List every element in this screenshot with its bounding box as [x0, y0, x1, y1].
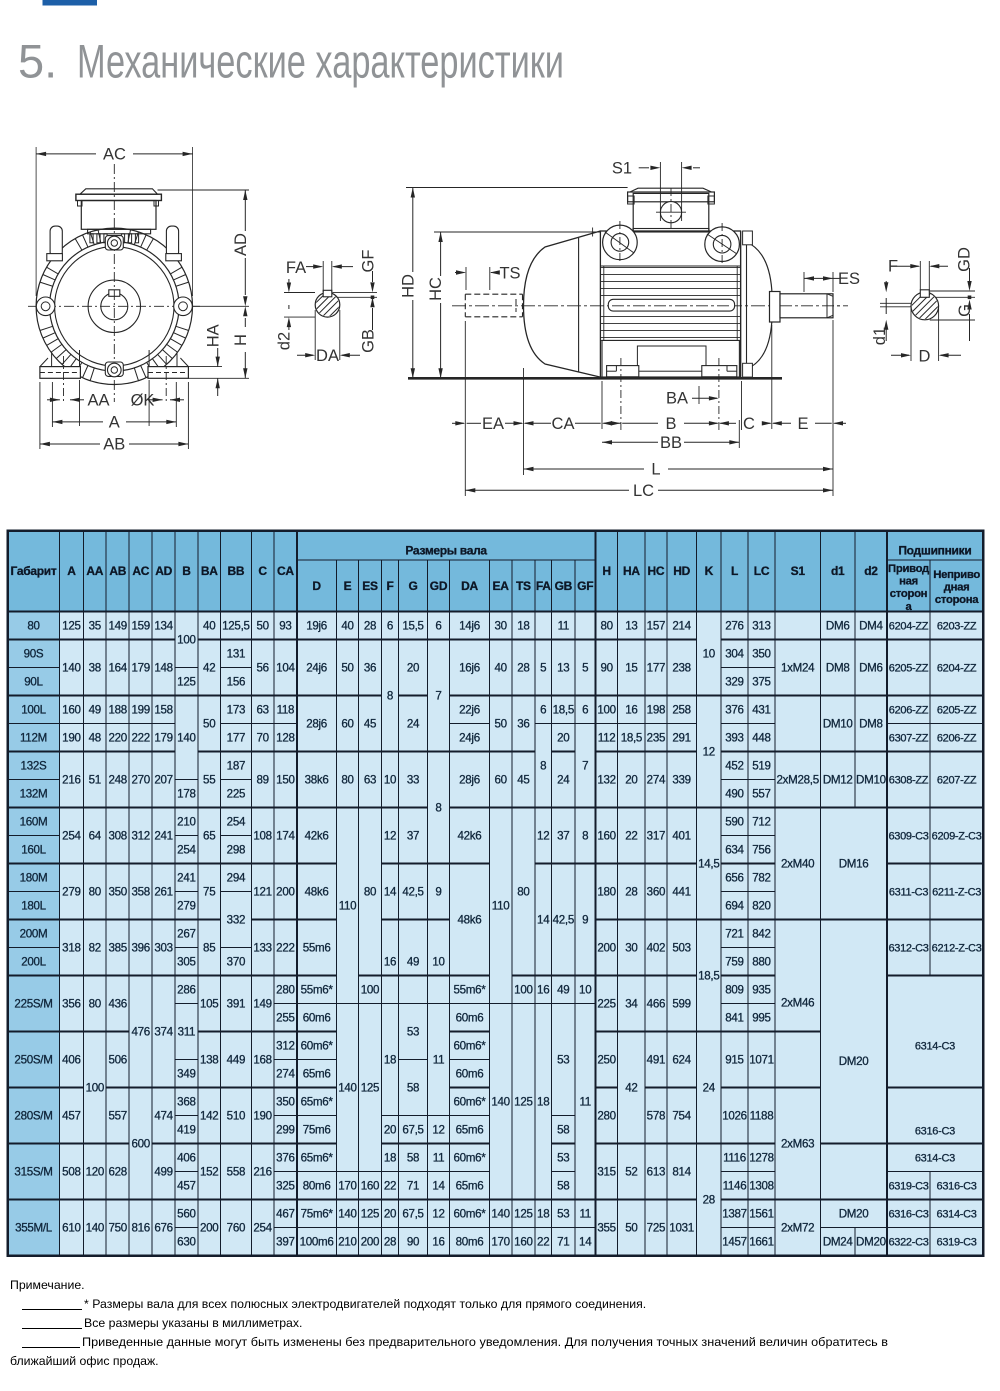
svg-text:241: 241	[154, 830, 172, 843]
svg-text:349: 349	[177, 1068, 195, 1081]
svg-text:160M: 160M	[20, 816, 48, 829]
svg-text:80: 80	[27, 620, 39, 633]
svg-text:104: 104	[276, 662, 295, 675]
svg-text:50: 50	[256, 620, 268, 633]
svg-text:* Размеры вала для всех полюсн: * Размеры вала для всех полюсных электро…	[84, 1297, 646, 1311]
svg-text:5: 5	[582, 662, 588, 675]
svg-text:2xM46: 2xM46	[781, 997, 814, 1010]
svg-text:DM6: DM6	[859, 662, 883, 675]
svg-text:HD: HD	[399, 274, 417, 298]
svg-text:200: 200	[276, 886, 294, 899]
svg-text:308: 308	[108, 830, 126, 843]
svg-text:Неприво: Неприво	[933, 569, 980, 581]
svg-text:60m6*: 60m6*	[453, 1152, 486, 1165]
svg-text:40: 40	[494, 662, 506, 675]
svg-text:A: A	[109, 413, 120, 431]
svg-text:EA: EA	[493, 579, 510, 593]
svg-text:303: 303	[154, 942, 172, 955]
svg-text:125: 125	[62, 620, 80, 633]
svg-text:DA: DA	[461, 579, 478, 593]
svg-text:6322-C3: 6322-C3	[888, 1237, 928, 1249]
svg-text:241: 241	[177, 872, 195, 885]
svg-text:67,5: 67,5	[402, 1124, 423, 1137]
svg-text:6314-C3: 6314-C3	[915, 1153, 955, 1165]
svg-text:180M: 180M	[20, 872, 48, 885]
svg-text:250S/M: 250S/M	[14, 1054, 52, 1067]
svg-text:90: 90	[600, 662, 612, 675]
svg-text:279: 279	[177, 900, 195, 913]
svg-text:401: 401	[672, 830, 690, 843]
svg-text:814: 814	[672, 1166, 691, 1179]
svg-text:225: 225	[227, 788, 245, 801]
svg-text:Габарит: Габарит	[11, 564, 57, 578]
svg-text:36: 36	[517, 718, 529, 731]
svg-text:12: 12	[432, 1208, 444, 1221]
svg-text:38: 38	[89, 662, 101, 675]
svg-text:6307-ZZ: 6307-ZZ	[889, 733, 929, 745]
svg-text:276: 276	[725, 620, 743, 633]
svg-text:A: A	[67, 564, 76, 578]
svg-text:457: 457	[177, 1180, 195, 1193]
svg-text:1457: 1457	[722, 1236, 747, 1249]
svg-text:190: 190	[253, 1110, 271, 1123]
svg-text:441: 441	[672, 886, 690, 899]
svg-text:200L: 200L	[21, 956, 46, 969]
svg-text:HC: HC	[427, 277, 445, 301]
svg-text:18: 18	[537, 1096, 549, 1109]
svg-text:312: 312	[131, 830, 149, 843]
svg-text:10: 10	[579, 984, 591, 997]
svg-text:FA: FA	[286, 259, 306, 277]
svg-text:6316-C3: 6316-C3	[937, 1181, 977, 1193]
svg-text:K: K	[705, 564, 714, 578]
svg-text:216: 216	[253, 1166, 271, 1179]
svg-text:1116: 1116	[723, 1152, 746, 1165]
svg-text:51: 51	[89, 774, 101, 787]
svg-text:10: 10	[384, 774, 396, 787]
svg-text:210: 210	[177, 816, 195, 829]
svg-text:14: 14	[537, 914, 550, 927]
svg-text:214: 214	[672, 620, 691, 633]
svg-text:71: 71	[407, 1180, 419, 1193]
svg-text:53: 53	[557, 1054, 569, 1067]
svg-text:63: 63	[256, 704, 268, 717]
svg-text:374: 374	[154, 1026, 173, 1039]
svg-text:329: 329	[725, 676, 743, 689]
svg-text:6211-Z-C3: 6211-Z-C3	[932, 887, 981, 899]
svg-text:16: 16	[384, 956, 396, 969]
svg-text:6206-ZZ: 6206-ZZ	[937, 733, 977, 745]
svg-text:ная: ная	[899, 576, 918, 588]
svg-text:935: 935	[752, 984, 770, 997]
svg-text:132M: 132M	[20, 788, 48, 801]
svg-text:222: 222	[131, 732, 149, 745]
svg-text:53: 53	[407, 1026, 419, 1039]
svg-text:сторона: сторона	[935, 594, 979, 606]
svg-text:85: 85	[203, 942, 215, 955]
svg-text:L: L	[731, 564, 738, 578]
svg-text:ближайший офис продаж.: ближайший офис продаж.	[10, 1354, 159, 1368]
svg-text:35: 35	[89, 620, 101, 633]
svg-text:42k6: 42k6	[305, 830, 329, 843]
svg-text:D: D	[312, 579, 321, 593]
svg-text:42,5: 42,5	[402, 886, 423, 899]
svg-text:71: 71	[557, 1236, 569, 1249]
svg-text:100: 100	[86, 1082, 104, 1095]
svg-text:6314-C3: 6314-C3	[937, 1209, 977, 1221]
svg-text:760: 760	[227, 1222, 245, 1235]
svg-text:DM10: DM10	[856, 774, 886, 787]
svg-text:65m6: 65m6	[303, 1068, 331, 1081]
svg-text:14: 14	[579, 1236, 592, 1249]
svg-text:45: 45	[517, 774, 529, 787]
svg-text:128: 128	[276, 732, 294, 745]
svg-text:225S/M: 225S/M	[14, 998, 52, 1011]
svg-text:28: 28	[703, 1194, 715, 1207]
svg-text:B: B	[665, 415, 676, 433]
svg-text:80: 80	[89, 998, 101, 1011]
svg-text:33: 33	[407, 774, 419, 787]
svg-text:402: 402	[647, 942, 665, 955]
svg-text:6: 6	[387, 620, 393, 633]
svg-text:80: 80	[341, 774, 353, 787]
svg-text:376: 376	[725, 704, 743, 717]
svg-text:125: 125	[361, 1208, 379, 1221]
svg-text:60m6: 60m6	[303, 1012, 331, 1025]
svg-text:140: 140	[338, 1082, 356, 1095]
svg-text:286: 286	[177, 984, 195, 997]
svg-text:30: 30	[494, 620, 506, 633]
svg-text:Все размеры указаны в миллимет: Все размеры указаны в миллиметрах.	[84, 1316, 302, 1330]
svg-text:19j6: 19j6	[306, 620, 327, 633]
svg-text:6: 6	[540, 704, 546, 717]
svg-text:396: 396	[131, 942, 149, 955]
svg-text:13: 13	[625, 620, 637, 633]
svg-text:1188: 1188	[750, 1110, 774, 1123]
svg-text:20: 20	[407, 662, 419, 675]
svg-text:142: 142	[200, 1110, 218, 1123]
svg-text:125: 125	[361, 1082, 379, 1095]
svg-text:Механические характеристики: Механические характеристики	[77, 35, 564, 88]
svg-text:506: 506	[108, 1054, 126, 1067]
svg-text:BB: BB	[228, 564, 245, 578]
svg-text:613: 613	[647, 1166, 665, 1179]
svg-text:199: 199	[131, 704, 149, 717]
svg-text:610: 610	[62, 1222, 80, 1235]
svg-text:11: 11	[558, 620, 569, 633]
svg-text:55: 55	[203, 774, 215, 787]
svg-text:6314-C3: 6314-C3	[915, 1041, 955, 1053]
svg-text:90S: 90S	[24, 648, 44, 661]
svg-text:820: 820	[752, 900, 770, 913]
svg-text:560: 560	[177, 1208, 195, 1221]
svg-text:65m6: 65m6	[456, 1124, 484, 1137]
svg-text:53: 53	[557, 1208, 569, 1221]
svg-text:158: 158	[154, 704, 172, 717]
svg-text:6: 6	[435, 620, 441, 633]
svg-text:L: L	[651, 461, 660, 479]
svg-text:358: 358	[131, 886, 149, 899]
svg-text:656: 656	[725, 872, 743, 885]
svg-text:Подшипники: Подшипники	[898, 544, 971, 558]
svg-text:12: 12	[703, 746, 715, 759]
svg-text:391: 391	[227, 998, 245, 1011]
svg-text:915: 915	[725, 1054, 743, 1067]
svg-text:448: 448	[752, 732, 770, 745]
svg-text:6204-ZZ: 6204-ZZ	[889, 621, 929, 633]
svg-text:28j6: 28j6	[459, 774, 480, 787]
svg-text:S1: S1	[791, 564, 806, 578]
svg-text:37: 37	[557, 830, 569, 843]
svg-text:149: 149	[253, 998, 271, 1011]
svg-text:20: 20	[384, 1124, 396, 1137]
svg-text:DM8: DM8	[859, 718, 883, 731]
svg-text:431: 431	[752, 704, 770, 717]
svg-text:18: 18	[517, 620, 529, 633]
svg-text:125: 125	[514, 1096, 532, 1109]
svg-text:28: 28	[625, 886, 637, 899]
svg-text:220: 220	[108, 732, 126, 745]
svg-text:Приведенные данные могут быть: Приведенные данные могут быть изменены б…	[82, 1335, 888, 1349]
svg-text:207: 207	[154, 774, 172, 787]
svg-text:AA: AA	[87, 391, 109, 409]
svg-text:406: 406	[177, 1152, 195, 1165]
svg-text:53: 53	[557, 1152, 569, 1165]
svg-text:13: 13	[557, 662, 569, 675]
svg-text:298: 298	[227, 844, 245, 857]
svg-text:280S/M: 280S/M	[14, 1110, 52, 1123]
svg-text:LC: LC	[754, 564, 770, 578]
svg-text:131: 131	[227, 648, 245, 661]
svg-text:9: 9	[435, 886, 441, 899]
svg-text:160: 160	[597, 830, 615, 843]
svg-text:694: 694	[725, 900, 744, 913]
svg-text:118: 118	[277, 704, 295, 717]
svg-text:178: 178	[177, 788, 195, 801]
svg-text:80: 80	[89, 886, 101, 899]
svg-text:B: B	[182, 564, 191, 578]
svg-text:179: 179	[154, 732, 172, 745]
svg-text:170: 170	[491, 1236, 509, 1249]
svg-text:254: 254	[177, 844, 196, 857]
svg-text:ES: ES	[362, 579, 378, 593]
svg-text:52: 52	[625, 1166, 637, 1179]
svg-text:HC: HC	[648, 564, 665, 578]
svg-text:H: H	[602, 564, 610, 578]
svg-text:261: 261	[154, 886, 172, 899]
svg-text:140: 140	[86, 1222, 104, 1235]
svg-text:DM20: DM20	[839, 1208, 869, 1221]
svg-text:150: 150	[276, 774, 294, 787]
svg-text:173: 173	[227, 704, 245, 717]
svg-text:510: 510	[227, 1110, 245, 1123]
svg-text:D: D	[919, 348, 931, 366]
svg-text:6316-C3: 6316-C3	[888, 1209, 928, 1221]
svg-text:16: 16	[432, 1236, 444, 1249]
svg-text:248: 248	[108, 774, 126, 787]
svg-text:782: 782	[752, 872, 770, 885]
svg-text:60m6*: 60m6*	[453, 1096, 486, 1109]
svg-text:16j6: 16j6	[459, 662, 480, 675]
svg-text:14: 14	[432, 1180, 445, 1193]
svg-text:350: 350	[752, 648, 770, 661]
svg-text:6205-ZZ: 6205-ZZ	[889, 663, 929, 675]
svg-text:318: 318	[62, 942, 80, 955]
svg-text:AD: AD	[232, 233, 250, 256]
svg-text:20: 20	[625, 774, 637, 787]
svg-text:EA: EA	[482, 415, 504, 433]
svg-text:12: 12	[384, 830, 396, 843]
svg-text:BA: BA	[201, 564, 218, 578]
svg-text:18,5: 18,5	[553, 704, 574, 717]
svg-text:160: 160	[514, 1236, 532, 1249]
svg-text:436: 436	[108, 998, 126, 1011]
svg-text:841: 841	[725, 1012, 743, 1025]
svg-text:1146: 1146	[723, 1180, 747, 1193]
svg-text:12: 12	[432, 1124, 444, 1137]
svg-text:558: 558	[227, 1166, 245, 1179]
svg-text:H: H	[232, 334, 250, 346]
svg-text:55m6: 55m6	[303, 942, 331, 955]
svg-text:125,5: 125,5	[222, 620, 250, 633]
svg-text:d2: d2	[276, 332, 294, 350]
svg-text:50: 50	[494, 718, 506, 731]
svg-text:132S: 132S	[21, 760, 47, 773]
svg-text:1661: 1661	[749, 1236, 774, 1249]
svg-text:235: 235	[647, 732, 665, 745]
svg-text:65m6: 65m6	[456, 1180, 484, 1193]
svg-text:16: 16	[537, 984, 549, 997]
svg-text:134: 134	[154, 620, 173, 633]
svg-text:754: 754	[672, 1110, 691, 1123]
svg-text:82: 82	[89, 942, 101, 955]
svg-text:355: 355	[597, 1222, 615, 1235]
svg-text:37: 37	[407, 830, 419, 843]
svg-text:393: 393	[725, 732, 743, 745]
svg-text:350: 350	[108, 886, 126, 899]
svg-text:80m6: 80m6	[303, 1180, 331, 1193]
svg-text:280: 280	[597, 1110, 615, 1123]
svg-text:E: E	[797, 415, 808, 433]
svg-text:599: 599	[672, 998, 690, 1011]
svg-text:6206-ZZ: 6206-ZZ	[889, 705, 929, 717]
svg-text:5: 5	[540, 662, 546, 675]
svg-text:630: 630	[177, 1236, 195, 1249]
svg-text:AC: AC	[132, 564, 149, 578]
svg-text:9: 9	[582, 914, 588, 927]
svg-text:DM8: DM8	[826, 662, 850, 675]
svg-text:816: 816	[131, 1222, 149, 1235]
svg-text:2xM28,5: 2xM28,5	[777, 774, 819, 787]
svg-text:AB: AB	[109, 564, 126, 578]
svg-text:10: 10	[703, 648, 715, 661]
svg-text:600: 600	[131, 1138, 149, 1151]
svg-text:67,5: 67,5	[402, 1208, 423, 1221]
svg-text:28: 28	[517, 662, 529, 675]
svg-text:G: G	[956, 304, 974, 317]
svg-text:250: 250	[597, 1054, 615, 1067]
svg-text:8: 8	[435, 802, 441, 815]
svg-text:60: 60	[341, 718, 353, 731]
svg-text:339: 339	[672, 774, 690, 787]
svg-text:42: 42	[625, 1082, 637, 1095]
svg-text:121: 121	[253, 886, 271, 899]
svg-text:49: 49	[89, 704, 101, 717]
svg-text:16: 16	[625, 704, 637, 717]
svg-text:140: 140	[338, 1208, 356, 1221]
svg-text:419: 419	[177, 1124, 195, 1137]
svg-text:476: 476	[131, 1026, 149, 1039]
svg-text:11: 11	[433, 1152, 444, 1165]
svg-text:6207-ZZ: 6207-ZZ	[937, 775, 977, 787]
svg-text:6308-ZZ: 6308-ZZ	[889, 775, 929, 787]
svg-text:6: 6	[582, 704, 588, 717]
svg-text:291: 291	[672, 732, 690, 745]
svg-text:312: 312	[276, 1040, 294, 1053]
svg-text:GD: GD	[956, 247, 974, 272]
svg-text:GD: GD	[430, 579, 448, 593]
svg-text:58: 58	[407, 1082, 419, 1095]
svg-text:58: 58	[557, 1124, 569, 1137]
svg-text:112M: 112M	[20, 732, 47, 745]
svg-text:490: 490	[725, 788, 743, 801]
svg-text:d2: d2	[864, 564, 878, 578]
svg-text:дная: дная	[944, 582, 970, 594]
svg-text:AA: AA	[86, 564, 103, 578]
svg-text:108: 108	[253, 830, 271, 843]
svg-text:60m6*: 60m6*	[301, 1040, 334, 1053]
svg-text:132: 132	[597, 774, 615, 787]
svg-text:313: 313	[752, 620, 770, 633]
svg-text:50: 50	[625, 1222, 637, 1235]
svg-text:140: 140	[491, 1208, 509, 1221]
svg-text:140: 140	[62, 662, 80, 675]
svg-text:315S/M: 315S/M	[14, 1166, 52, 1179]
svg-text:160: 160	[361, 1180, 379, 1193]
svg-text:120: 120	[86, 1166, 104, 1179]
svg-text:6205-ZZ: 6205-ZZ	[937, 705, 977, 717]
svg-text:11: 11	[579, 1208, 590, 1221]
svg-text:50: 50	[341, 662, 353, 675]
svg-text:60m6: 60m6	[456, 1012, 484, 1025]
svg-text:216: 216	[62, 774, 80, 787]
svg-text:177: 177	[227, 732, 245, 745]
svg-text:100: 100	[597, 704, 615, 717]
svg-text:42k6: 42k6	[458, 830, 482, 843]
svg-text:350: 350	[276, 1096, 294, 1109]
svg-text:6316-C3: 6316-C3	[915, 1126, 955, 1138]
svg-text:CA: CA	[552, 415, 575, 433]
svg-text:198: 198	[647, 704, 665, 717]
svg-text:DM20: DM20	[856, 1236, 886, 1249]
svg-text:590: 590	[725, 816, 743, 829]
svg-text:GB: GB	[555, 579, 573, 593]
svg-text:ES: ES	[838, 270, 860, 288]
svg-text:11: 11	[579, 1096, 590, 1109]
svg-text:40: 40	[203, 620, 215, 633]
svg-text:GB: GB	[360, 329, 378, 353]
svg-text:48k6: 48k6	[305, 886, 329, 899]
svg-text:d1: d1	[871, 327, 889, 345]
svg-text:LC: LC	[633, 482, 654, 500]
svg-text:18,5: 18,5	[621, 732, 642, 745]
svg-text:6204-ZZ: 6204-ZZ	[937, 663, 977, 675]
svg-text:1026: 1026	[722, 1110, 747, 1123]
svg-text:22: 22	[537, 1236, 549, 1249]
svg-text:18: 18	[384, 1152, 396, 1165]
svg-text:75m6*: 75m6*	[301, 1208, 334, 1221]
svg-text:55m6*: 55m6*	[453, 984, 486, 997]
